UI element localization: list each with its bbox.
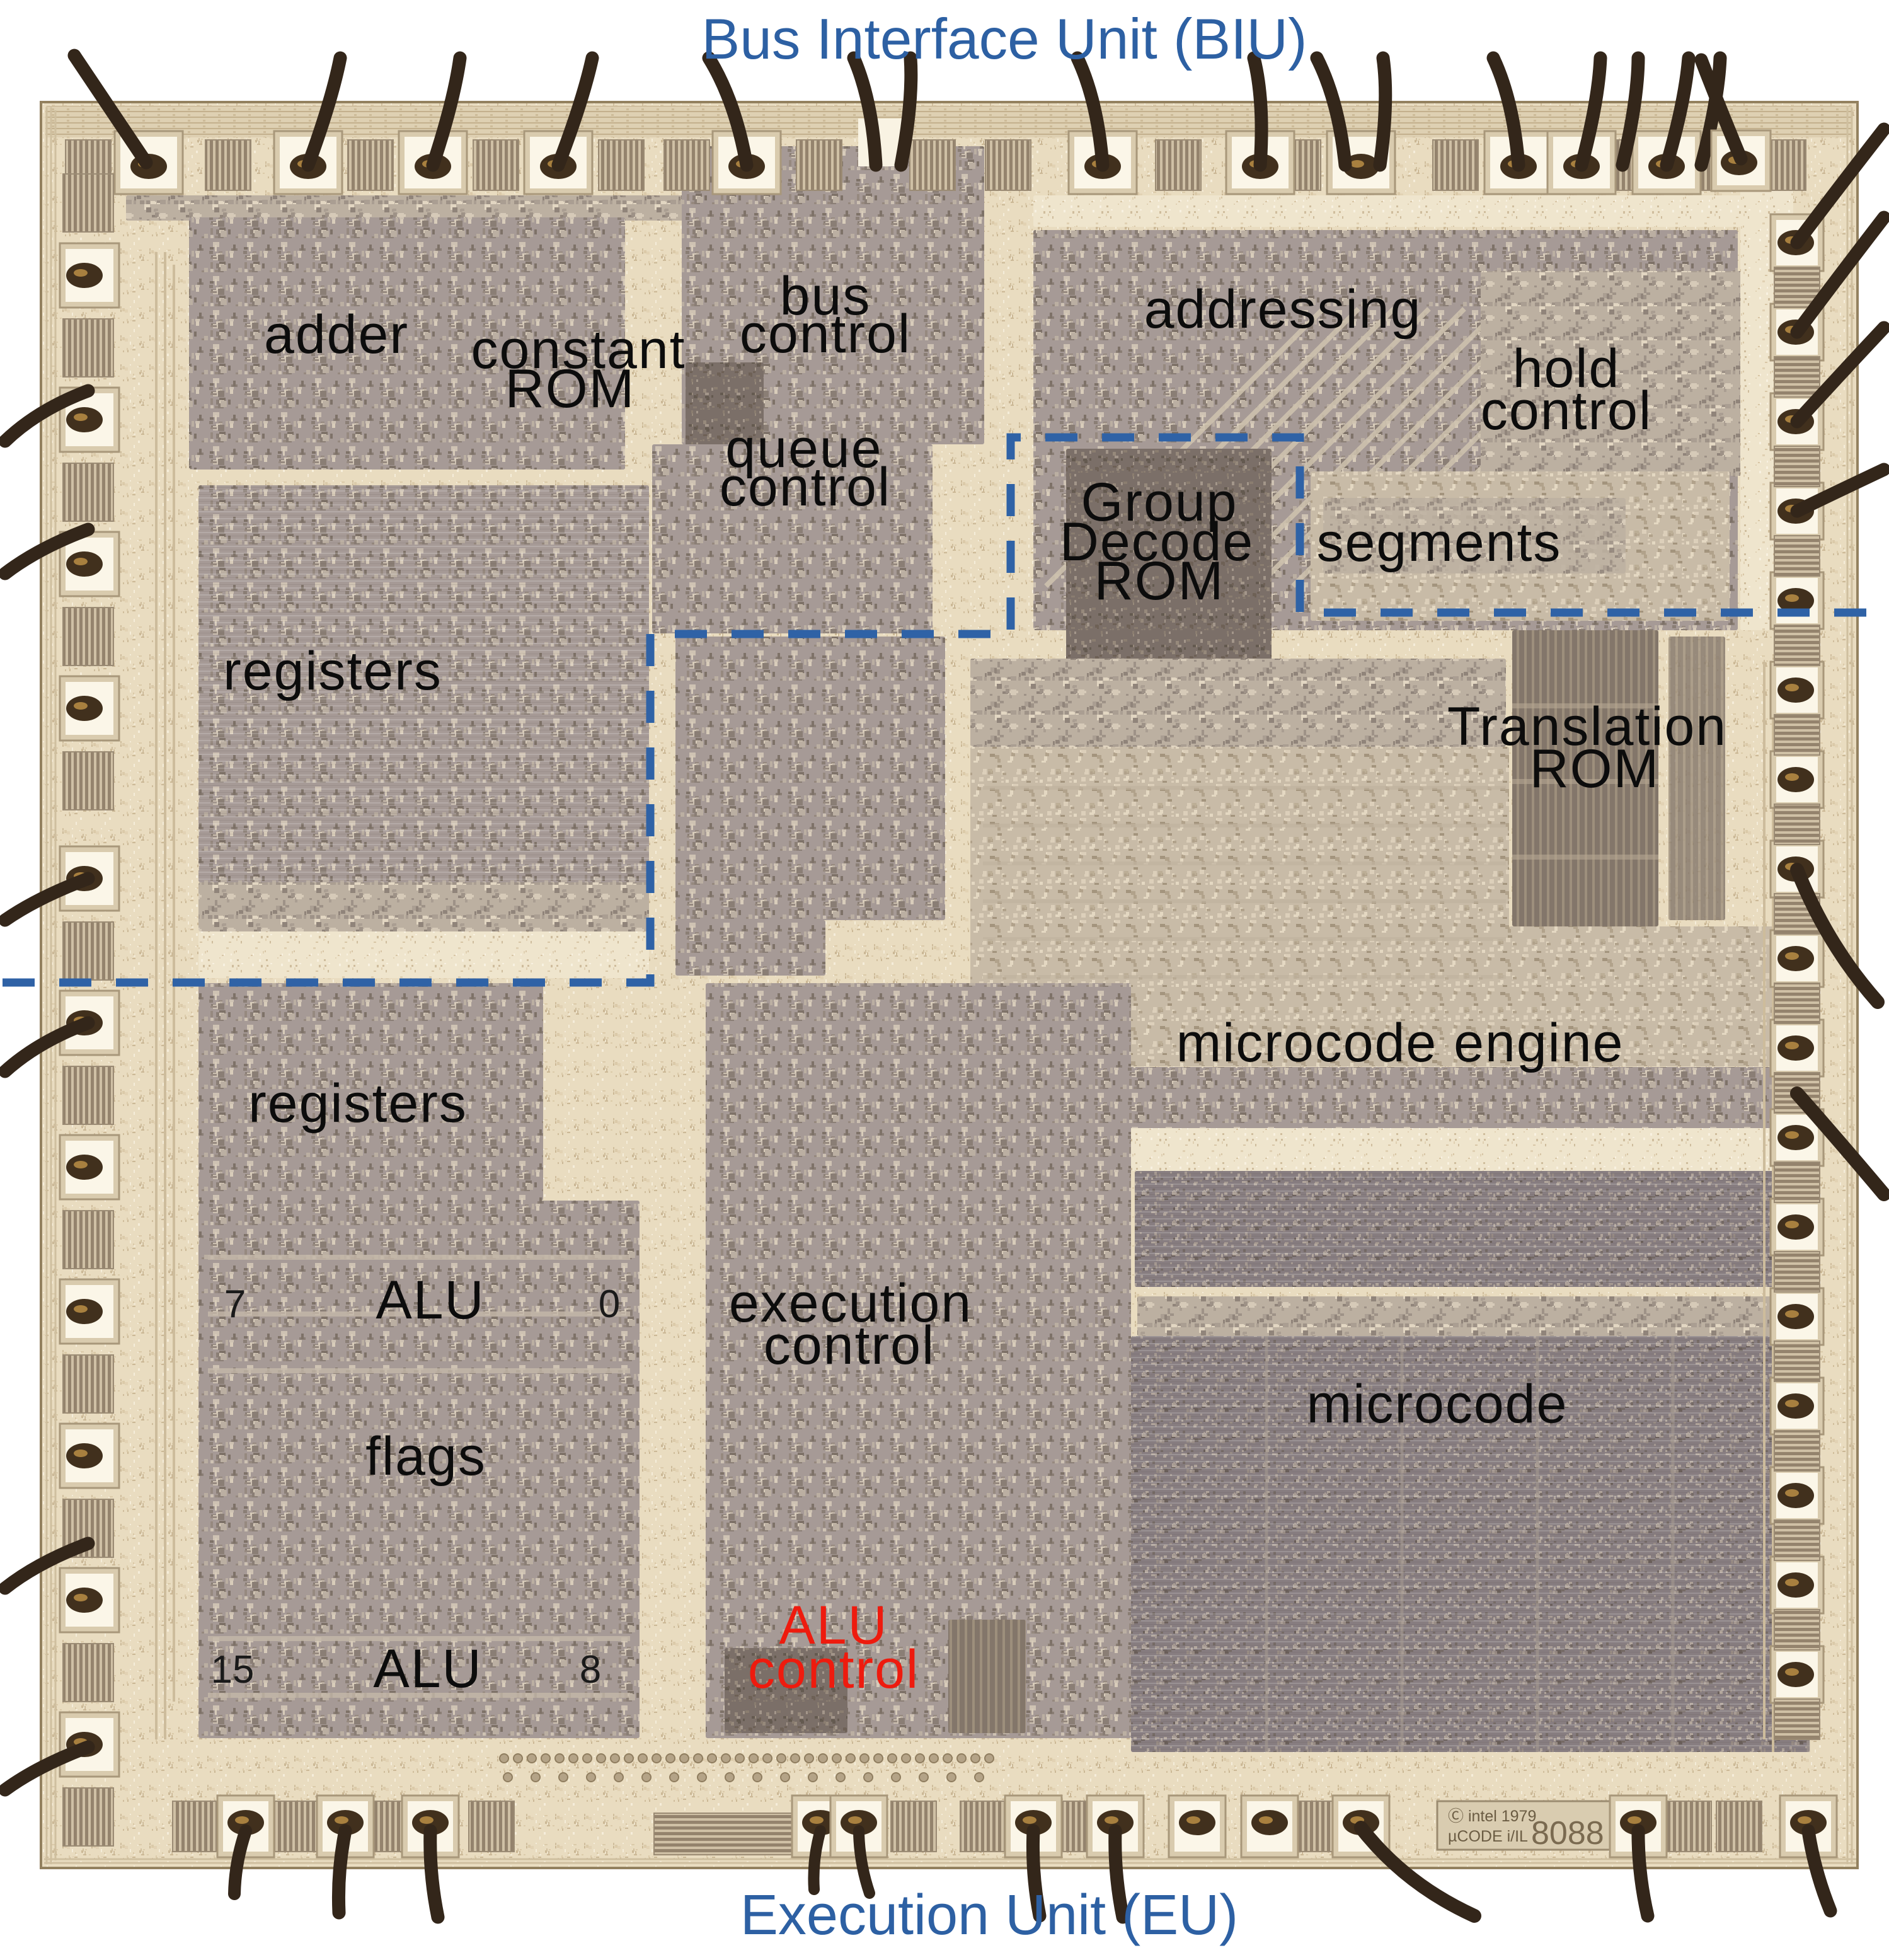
svg-text:control: control [1481, 381, 1652, 441]
svg-text:flags: flags [365, 1426, 486, 1487]
svg-text:ROM: ROM [1094, 551, 1225, 611]
svg-text:ROM: ROM [1530, 739, 1660, 799]
svg-text:control: control [740, 304, 911, 364]
svg-text:ALU: ALU [373, 1639, 482, 1699]
svg-text:15: 15 [211, 1648, 255, 1692]
svg-text:Execution Unit (EU): Execution Unit (EU) [740, 1884, 1238, 1947]
svg-text:8088: 8088 [1531, 1815, 1604, 1852]
svg-text:microcode: microcode [1307, 1374, 1568, 1434]
svg-text:addressing: addressing [1144, 279, 1422, 340]
svg-text:ROM: ROM [505, 359, 636, 419]
svg-text:Ⓒ intel 1979: Ⓒ intel 1979 [1448, 1807, 1536, 1825]
svg-text:registers: registers [248, 1073, 468, 1134]
svg-text:ALU: ALU [376, 1270, 485, 1330]
svg-text:control: control [748, 1639, 919, 1700]
svg-text:0: 0 [599, 1283, 620, 1326]
svg-text:registers: registers [223, 641, 442, 701]
svg-text:µCODE i/IL: µCODE i/IL [1448, 1828, 1528, 1845]
svg-text:8: 8 [580, 1648, 601, 1692]
svg-text:7: 7 [224, 1283, 246, 1326]
svg-text:control: control [720, 457, 891, 517]
svg-text:adder: adder [264, 304, 409, 365]
svg-text:Bus Interface Unit (BIU): Bus Interface Unit (BIU) [702, 8, 1307, 71]
svg-text:control: control [764, 1315, 935, 1376]
svg-text:microcode engine: microcode engine [1176, 1013, 1624, 1073]
svg-text:segments: segments [1317, 512, 1562, 573]
